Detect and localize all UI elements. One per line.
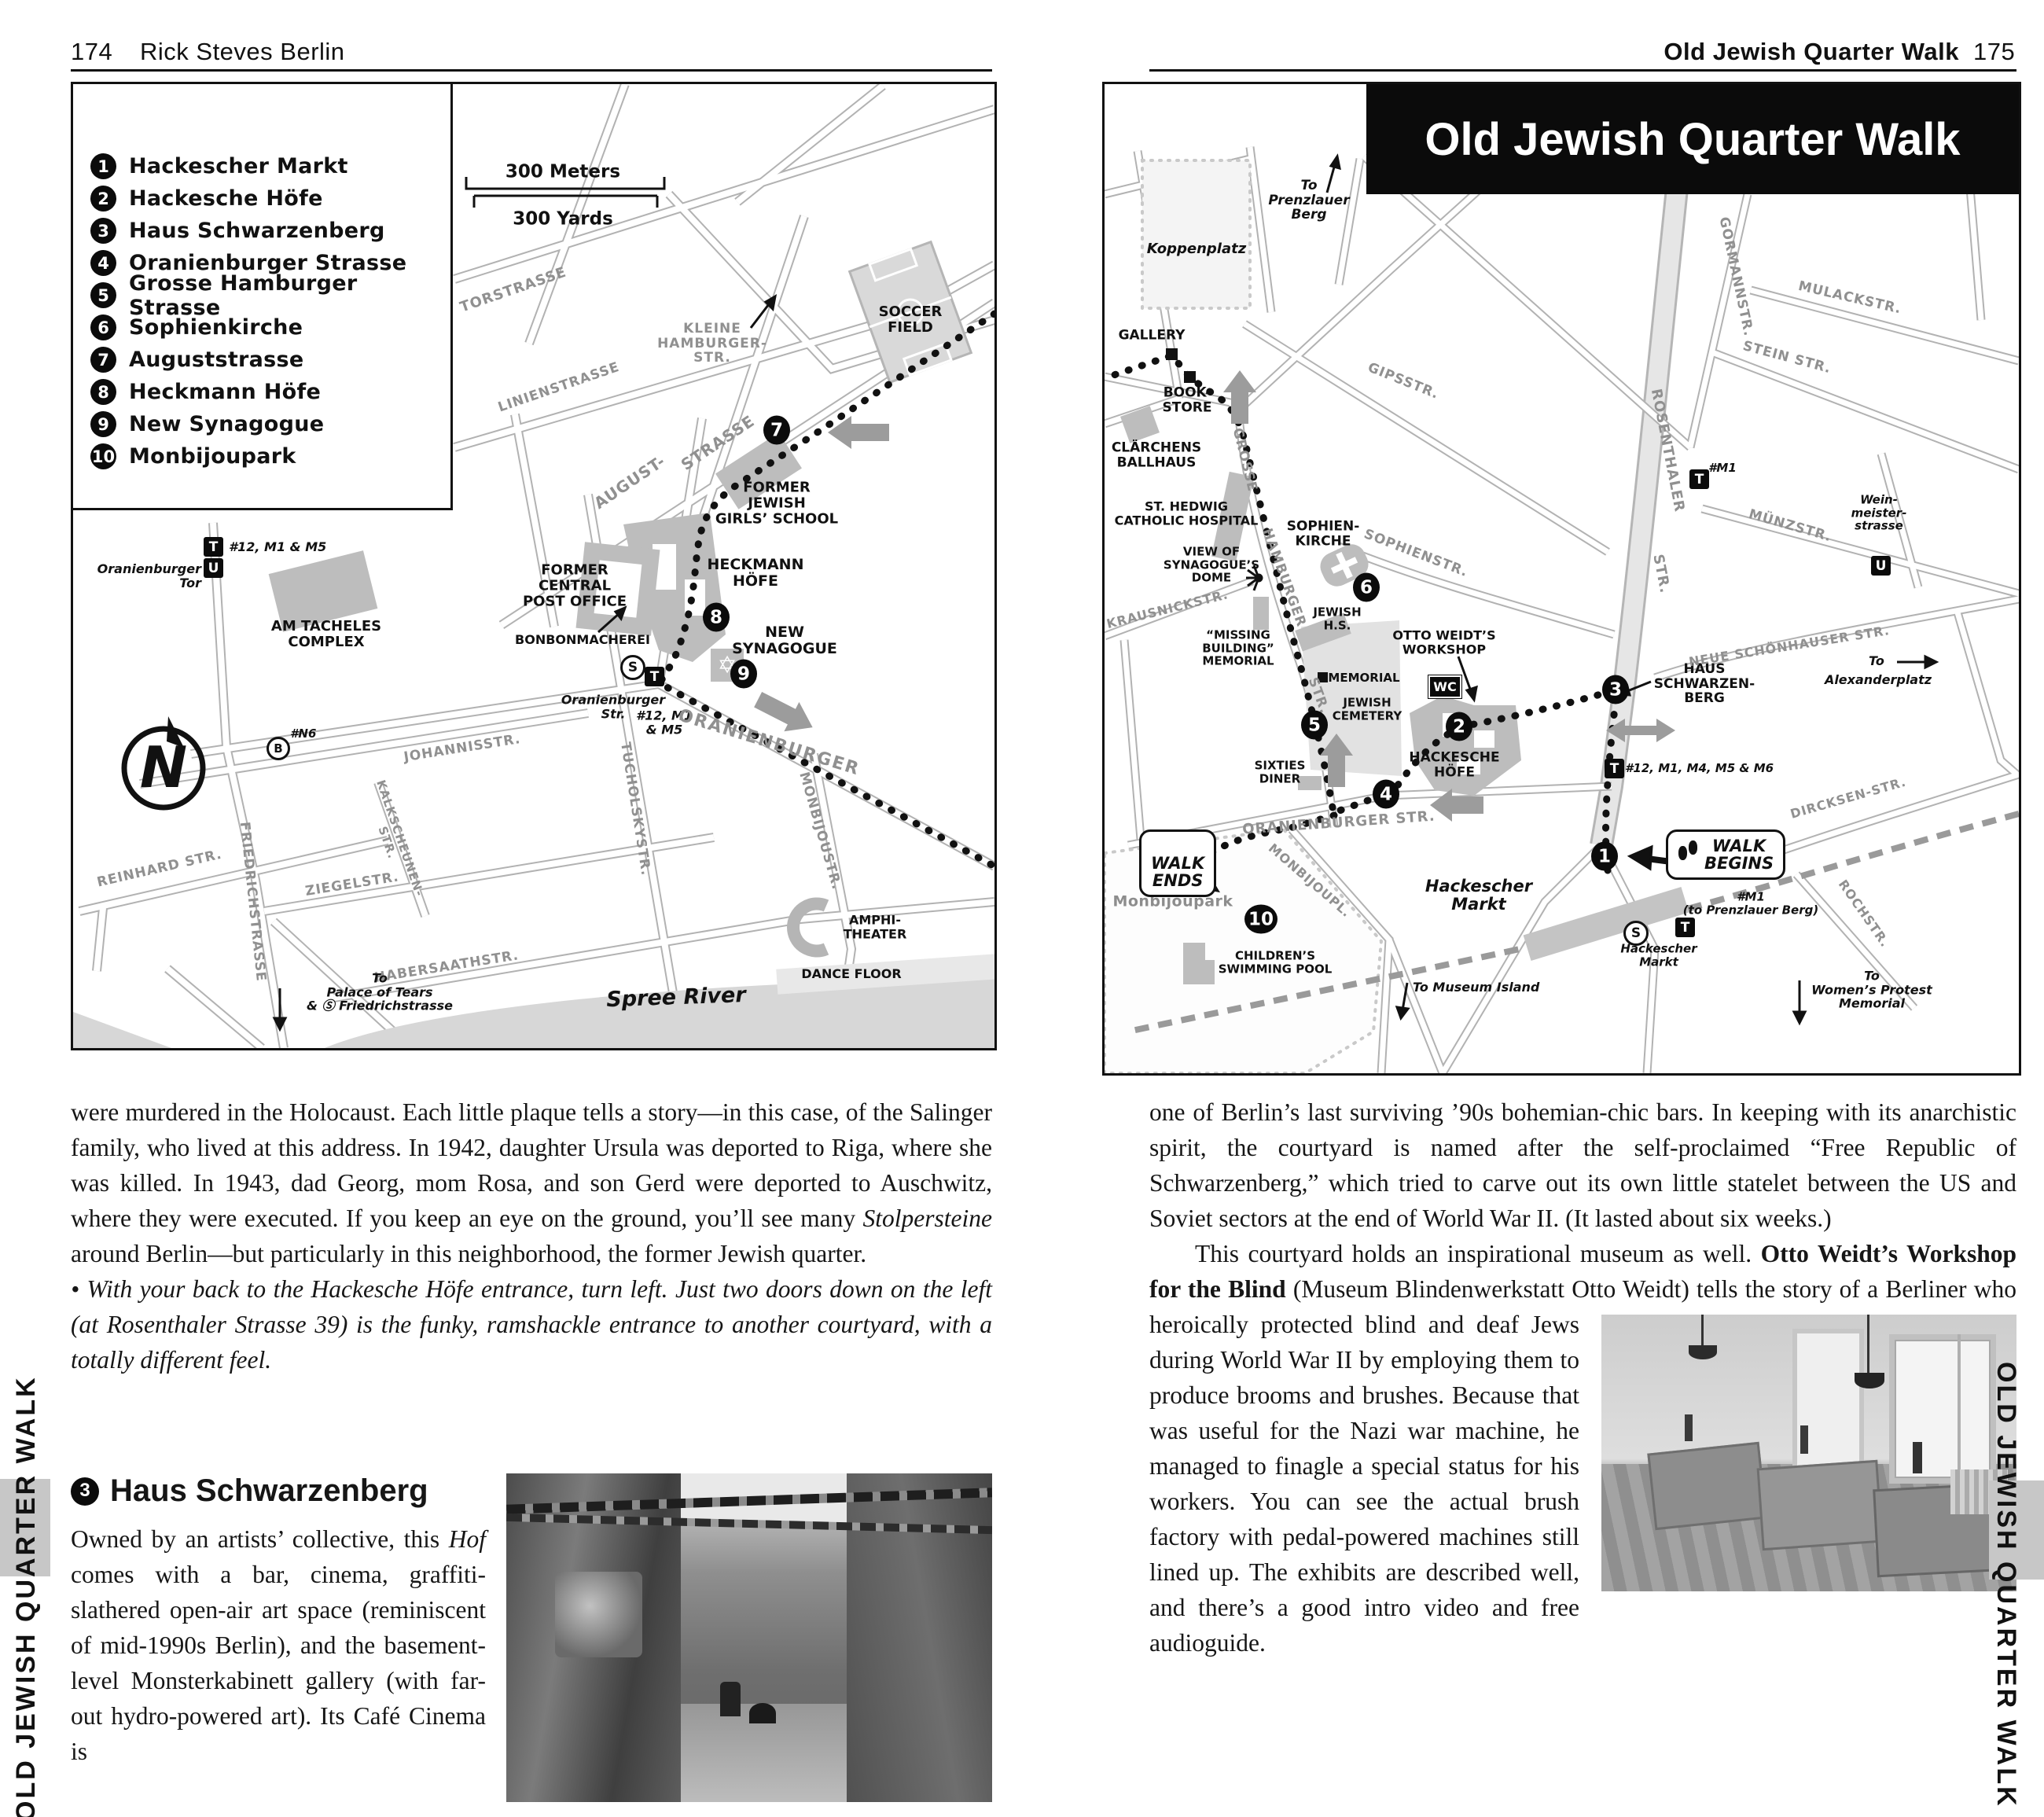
photo-window bbox=[1889, 1334, 1995, 1484]
legend-label: Monbijoupark bbox=[129, 444, 296, 469]
label-to-alexanderplatz: Alexanderplatz bbox=[1825, 673, 1932, 687]
legend-num: 7 bbox=[90, 347, 116, 373]
tram-icon: T bbox=[645, 667, 664, 686]
label-st-hedwig-hospital: ST. HEDWIG CATHOLIC HOSPITAL bbox=[1115, 499, 1259, 527]
legend-label: Grosse Hamburger Strasse bbox=[129, 271, 450, 320]
legend-item: 9New Synagogue bbox=[73, 408, 450, 440]
label-to-museum-island: To Museum Island bbox=[1413, 980, 1539, 995]
right-page-number: 175 bbox=[1973, 38, 2015, 66]
legend-item: 8Heckmann Höfe bbox=[73, 376, 450, 408]
label-new-synagogue: NEW SYNAGOGUE bbox=[732, 624, 837, 657]
legend-item: 5Grosse Hamburger Strasse bbox=[73, 279, 450, 311]
body-text: This courtyard holds an inspirational mu… bbox=[1195, 1240, 1761, 1267]
label-heckmann-hofe: HECKMANN HÖFE bbox=[708, 557, 804, 590]
label-gallery: GALLERY bbox=[1119, 329, 1186, 344]
scale-yards-label: 300 Yards bbox=[513, 209, 613, 229]
walk-ends-badge: WALK ENDS bbox=[1139, 829, 1216, 897]
left-margin-walk-label: OLD JEWISH QUARTER WALK bbox=[11, 1362, 42, 1817]
photo-lamp bbox=[1855, 1373, 1884, 1388]
ubahn-icon: U bbox=[204, 558, 223, 578]
legend-num: 6 bbox=[90, 314, 116, 340]
body-text: one of Berlin’s last surviving ’90s bohe… bbox=[1149, 1098, 2016, 1232]
legend-label: Heckmann Höfe bbox=[129, 380, 321, 404]
label-haus-schwarzenberg: HAUS SCHWARZEN- BERG bbox=[1654, 662, 1755, 706]
right-page-body: one of Berlin’s last surviving ’90s bohe… bbox=[1149, 1094, 2016, 1661]
legend-num: 8 bbox=[90, 379, 116, 405]
label-otto-weidts-workshop: OTTO WEIDT’S WORKSHOP bbox=[1392, 628, 1495, 656]
legend-num: 4 bbox=[90, 250, 116, 276]
legend-item: 10Monbijoupark bbox=[73, 440, 450, 473]
walking-direction-note: • With your back to the Hackesche Höfe e… bbox=[71, 1271, 992, 1377]
label-weinmeisterstrasse: Wein- meister- strasse bbox=[1851, 493, 1907, 532]
map-marker-1: 1 bbox=[1591, 842, 1618, 871]
label-tor-tram-lines: #12, M1 & M5 bbox=[229, 540, 326, 554]
koppenplatz-park bbox=[1142, 160, 1250, 308]
label-soccer-field: SOCCER FIELD bbox=[879, 304, 943, 336]
map-marker-5: 5 bbox=[1301, 711, 1328, 740]
section-heading-text: Haus Schwarzenberg bbox=[110, 1469, 428, 1514]
legend-num: 10 bbox=[90, 443, 116, 469]
right-running-header: Old Jewish Quarter Walk bbox=[1149, 38, 1959, 66]
paragraph-otto-weidt: This courtyard holds an inspirational mu… bbox=[1149, 1236, 2016, 1661]
photo-machine bbox=[1800, 1425, 1808, 1454]
photo-haus-schwarzenberg-courtyard bbox=[506, 1473, 992, 1802]
legend-num: 9 bbox=[90, 411, 116, 437]
legend-num: 5 bbox=[90, 282, 116, 308]
legend-num: 1 bbox=[90, 153, 116, 179]
label-am-tacheles-complex: AM TACHELES COMPLEX bbox=[271, 619, 381, 650]
label-kleine-hamburger-str: KLEINE HAMBURGER- STR. bbox=[657, 322, 767, 366]
paragraph-stolpersteine: were murdered in the Holocaust. Each lit… bbox=[71, 1094, 992, 1271]
photo-window-bar bbox=[1958, 1334, 1961, 1473]
legend-label: Hackescher Markt bbox=[129, 154, 348, 178]
map-marker-4: 4 bbox=[1373, 780, 1399, 809]
tram-icon: T bbox=[1689, 469, 1709, 489]
legend-label: Hackesche Höfe bbox=[129, 186, 323, 211]
label-to-alexanderplatz-to: To bbox=[1869, 654, 1884, 668]
ubahn-icon: U bbox=[1871, 556, 1891, 576]
map-legend: 1Hackescher Markt 2Hackesche Höfe 3Haus … bbox=[73, 84, 453, 510]
photo-figure bbox=[749, 1703, 776, 1723]
legend-item: 2Hackesche Höfe bbox=[73, 182, 450, 215]
legend-item: 3Haus Schwarzenberg bbox=[73, 215, 450, 247]
label-dance-floor: DANCE FLOOR bbox=[801, 967, 901, 981]
walk-begins-badge: WALK BEGINS bbox=[1666, 829, 1785, 880]
left-page-number: 174 bbox=[71, 38, 112, 66]
map-marker-9: 9 bbox=[730, 660, 757, 689]
photo-figure bbox=[720, 1682, 741, 1716]
legend-label: Haus Schwarzenberg bbox=[129, 219, 385, 243]
compass-rose: N bbox=[124, 716, 203, 807]
label-oranienburger-tor: Oranienburger Tor bbox=[79, 562, 201, 590]
map-marker-6: 6 bbox=[1353, 573, 1380, 602]
photo-lamp-cord bbox=[1867, 1315, 1869, 1375]
sbahn-icon: S bbox=[620, 655, 645, 680]
legend-label: Auguststrasse bbox=[129, 348, 304, 372]
map-marker-7: 7 bbox=[763, 416, 790, 445]
label-amphitheater: AMPHI- THEATER bbox=[844, 913, 907, 940]
legend-item: 1Hackescher Markt bbox=[73, 150, 450, 182]
label-bookstore: BOOK- STORE bbox=[1163, 385, 1212, 414]
label-to-prenzlauer-berg: To Prenzlauer Berg bbox=[1268, 178, 1349, 223]
map-left: ✡ bbox=[71, 82, 997, 1050]
map-title-banner: Old Jewish Quarter Walk bbox=[1366, 84, 2019, 194]
map-right: Old Jewish Quarter Walk To Prenzlauer Be… bbox=[1102, 82, 2021, 1076]
section-heading-haus-schwarzenberg: 3 Haus Schwarzenberg bbox=[71, 1469, 486, 1514]
map-marker-3: 3 bbox=[1602, 675, 1629, 704]
label-bus-n6: #N6 bbox=[290, 727, 316, 741]
tram-icon: T bbox=[1675, 918, 1695, 937]
label-to-palace-of-tears: To Palace of Tears & Ⓢ Friedrichstrasse bbox=[307, 972, 453, 1013]
body-text: comes with a bar, cinema, graffiti-slath… bbox=[71, 1561, 486, 1765]
map-marker-2: 2 bbox=[1446, 712, 1472, 741]
label-tram-lines-hackescher: #12, M1, M4, M5 & M6 bbox=[1625, 762, 1774, 775]
wc-icon: WC bbox=[1428, 675, 1461, 698]
label-to-womens-protest-memorial: To Women’s Protest Memorial bbox=[1811, 969, 1932, 1011]
legend-label: New Synagogue bbox=[129, 412, 324, 436]
tram-icon: T bbox=[204, 537, 223, 557]
photo-machine bbox=[1685, 1414, 1693, 1441]
river-corner bbox=[73, 1012, 171, 1048]
right-header-rule bbox=[1149, 69, 2016, 72]
body-text-italic: Hof bbox=[449, 1525, 486, 1553]
legend-label: Sophienkirche bbox=[129, 315, 303, 340]
paragraph-schwarzenberg-republic: one of Berlin’s last surviving ’90s bohe… bbox=[1149, 1094, 2016, 1236]
label-m1: #M1 bbox=[1708, 462, 1737, 475]
label-view-of-synagogues-dome: VIEW OF SYNAGOGUE’S DOME bbox=[1164, 545, 1259, 584]
photo-workbench bbox=[1756, 1460, 1883, 1550]
book-spread: OLD JEWISH QUARTER WALK OLD JEWISH QUART… bbox=[0, 0, 2044, 1817]
body-text: around Berlin—but particularly in this n… bbox=[71, 1240, 866, 1267]
scale-meters-label: 300 Meters bbox=[505, 162, 620, 182]
label-jewish-hs: JEWISH H.S. bbox=[1313, 606, 1361, 632]
left-page-body: were murdered in the Holocaust. Each lit… bbox=[71, 1094, 992, 1377]
bullet: • bbox=[71, 1275, 79, 1303]
photo-lamp bbox=[1689, 1345, 1717, 1359]
label-koppenplatz: Koppenplatz bbox=[1147, 241, 1246, 257]
label-childrens-swimming-pool: CHILDREN’S SWIMMING POOL bbox=[1219, 950, 1333, 976]
label-memorial: MEMORIAL bbox=[1328, 671, 1399, 685]
photo-otto-weidt-workshop bbox=[1601, 1315, 2016, 1591]
photo-machine bbox=[1913, 1442, 1922, 1473]
haus-schwarzenberg-section: 3 Haus Schwarzenberg Owned by an artists… bbox=[71, 1469, 992, 1802]
sbahn-icon: S bbox=[1623, 921, 1649, 946]
note-text: With your back to the Hackesche Höfe ent… bbox=[71, 1275, 992, 1374]
label-former-central-post-office: FORMER CENTRAL POST OFFICE bbox=[523, 562, 627, 609]
legend-item: 7Auguststrasse bbox=[73, 344, 450, 376]
label-spree-river: Spree River bbox=[606, 984, 746, 1012]
tram-icon: T bbox=[1605, 759, 1624, 778]
photo-lamp-cord bbox=[1701, 1315, 1704, 1348]
bus-icon: B bbox=[267, 737, 290, 760]
walk-begins-text: WALK BEGINS bbox=[1704, 837, 1774, 872]
photo-window bbox=[1792, 1329, 1864, 1482]
label-hackescher-markt: Hackescher Markt bbox=[1425, 877, 1532, 914]
label-hackescher-markt-station: Hackescher Markt bbox=[1620, 943, 1697, 969]
label-missing-building-memorial: “MISSING BUILDING” MEMORIAL bbox=[1202, 628, 1274, 668]
footprints-icon bbox=[1678, 846, 1698, 863]
photo-graffiti bbox=[555, 1572, 642, 1657]
amphitheater-shape bbox=[793, 903, 826, 951]
walk-ends-text: WALK ENDS bbox=[1151, 854, 1204, 890]
left-header-rule bbox=[71, 69, 992, 72]
legend-num: 3 bbox=[90, 218, 116, 244]
label-sixties-diner: SIXTIES DINER bbox=[1255, 760, 1306, 785]
label-m1-to-prenzlauer: #M1 (to Prenzlauer Berg) bbox=[1683, 891, 1818, 917]
section-number-badge: 3 bbox=[71, 1477, 99, 1506]
left-running-header: Rick Steves Berlin bbox=[140, 38, 345, 66]
legend-num: 2 bbox=[90, 186, 116, 211]
body-text-italic: Stolpersteine bbox=[863, 1205, 992, 1232]
label-sophienkirche: SOPHIEN- KIRCHE bbox=[1287, 519, 1360, 548]
map-marker-10: 10 bbox=[1244, 905, 1277, 934]
body-text: blind and deaf Jews during World War II … bbox=[1149, 1311, 1579, 1657]
body-text: were murdered in the Holocaust. Each lit… bbox=[71, 1098, 992, 1232]
label-clarchens-ballhaus: CLÄRCHENS BALLHAUS bbox=[1112, 440, 1201, 469]
label-hackesche-hofe: HACKESCHE HÖFE bbox=[1409, 750, 1499, 779]
map-title: Old Jewish Quarter Walk bbox=[1425, 113, 1960, 166]
label-former-jewish-girls-school: FORMER JEWISH GIRLS’ SCHOOL bbox=[715, 480, 838, 526]
body-text: Owned by an artists’ collective, this bbox=[71, 1525, 449, 1553]
right-margin-walk-label: OLD JEWISH QUARTER WALK bbox=[1991, 1362, 2021, 1817]
map-marker-8: 8 bbox=[703, 603, 730, 632]
label-jewish-cemetery: JEWISH CEMETERY bbox=[1333, 697, 1402, 723]
photo-workbench bbox=[1648, 1442, 1768, 1530]
label-bonbonmacherei: BONBONMACHEREI bbox=[515, 633, 650, 647]
